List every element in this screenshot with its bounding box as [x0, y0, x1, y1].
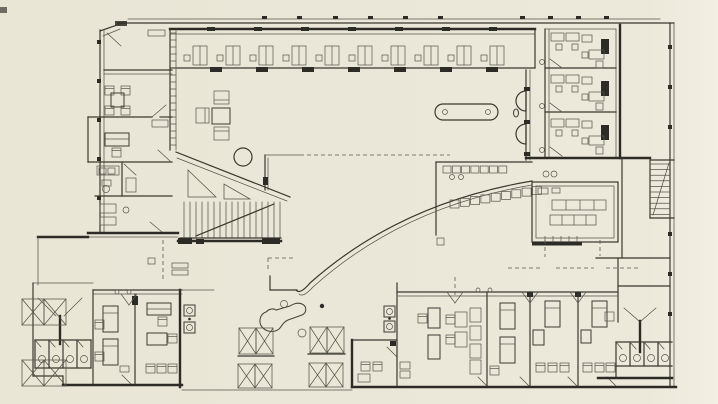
floor-plan-drawing — [0, 0, 718, 404]
paper-background — [0, 0, 718, 404]
floor-plan-scan — [0, 0, 718, 404]
scan-corner-artifact — [0, 7, 7, 13]
